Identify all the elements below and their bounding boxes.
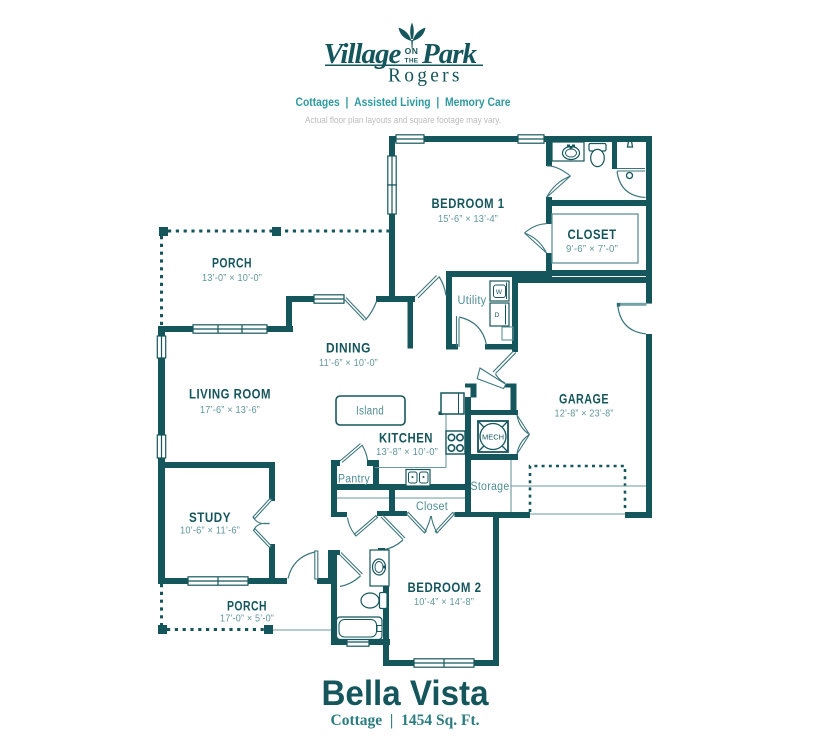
svg-text:MECH: MECH: [482, 433, 504, 442]
svg-text:STUDY: STUDY: [189, 510, 231, 525]
svg-text:BEDROOM 2: BEDROOM 2: [408, 580, 482, 595]
svg-text:ON: ON: [405, 46, 419, 56]
svg-text:10’-4” × 14’-8”: 10’-4” × 14’-8”: [414, 596, 474, 608]
svg-text:Storage: Storage: [471, 481, 510, 493]
svg-text:9’-6” × 7’-0”: 9’-6” × 7’-0”: [566, 243, 618, 255]
svg-text:PORCH: PORCH: [227, 599, 267, 614]
svg-text:KITCHEN: KITCHEN: [379, 431, 433, 446]
svg-text:DINING: DINING: [326, 341, 371, 356]
svg-text:10’-6” × 11’-6”: 10’-6” × 11’-6”: [180, 525, 240, 537]
svg-text:17’-0” × 5’-0”: 17’-0” × 5’-0”: [220, 613, 274, 625]
svg-text:Pantry: Pantry: [338, 474, 370, 486]
svg-text:Utility: Utility: [458, 295, 487, 307]
svg-text:GARAGE: GARAGE: [559, 392, 609, 407]
svg-text:LIVING ROOM: LIVING ROOM: [189, 387, 271, 402]
svg-text:Closet: Closet: [416, 501, 448, 513]
svg-text:W: W: [496, 289, 503, 296]
svg-text:PORCH: PORCH: [212, 256, 252, 271]
svg-text:THE: THE: [405, 58, 419, 65]
svg-text:Actual floor plan layouts and: Actual floor plan layouts and square foo…: [305, 115, 501, 125]
svg-text:BEDROOM 1: BEDROOM 1: [432, 196, 505, 211]
svg-text:Island: Island: [356, 406, 384, 418]
svg-text:D: D: [495, 312, 500, 319]
svg-text:13’-0” × 10’-0”: 13’-0” × 10’-0”: [202, 272, 262, 284]
svg-text:12’-8” × 23’-8”: 12’-8” × 23’-8”: [555, 408, 614, 420]
svg-text:15’-6” × 13’-4”: 15’-6” × 13’-4”: [438, 213, 498, 225]
svg-text:11’-6” × 10’-0”: 11’-6” × 10’-0”: [319, 357, 378, 369]
svg-text:Cottages | Assisted Living: Cottages | Assisted Living | Memory Care: [296, 97, 511, 109]
svg-text:13’-8” × 10’-0”: 13’-8” × 10’-0”: [376, 446, 438, 458]
svg-text:Cottage | 1454 Sq. Ft.: Cottage | 1454 Sq. Ft.: [331, 712, 480, 729]
svg-text:Rogers: Rogers: [388, 66, 461, 87]
svg-text:17’-6” × 13’-6”: 17’-6” × 13’-6”: [200, 404, 260, 416]
svg-text:CLOSET: CLOSET: [568, 227, 617, 242]
svg-text:Bella Vista: Bella Vista: [322, 674, 490, 713]
